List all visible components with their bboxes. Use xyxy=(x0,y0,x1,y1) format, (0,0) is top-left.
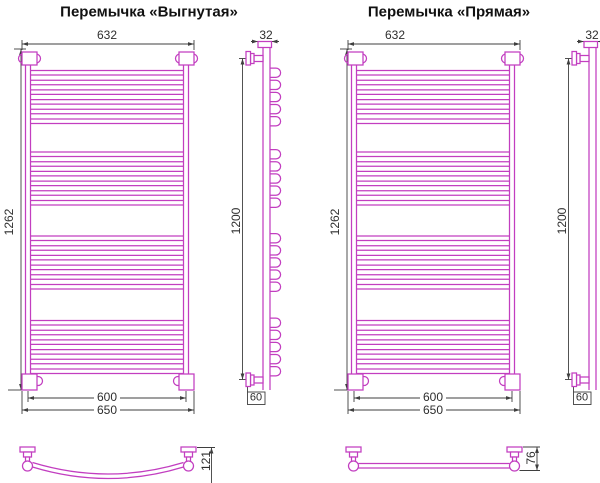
dim-cap-width-label: 32 xyxy=(585,29,598,41)
dim-bar-depth-label: 121 xyxy=(200,451,212,471)
dim-overall-width-label: 650 xyxy=(94,404,120,416)
figure-title: Перемычка «Выгнутая» xyxy=(60,4,238,21)
pryamaya-product-lines xyxy=(345,42,598,472)
vygnutaya-product-lines xyxy=(19,42,281,479)
vygnutaya-drawing xyxy=(8,40,281,483)
dim-axis-height-label: 1200 xyxy=(556,208,568,235)
dim-overall-height-label: 1262 xyxy=(329,209,341,236)
dim-overall-width-label: 650 xyxy=(420,404,446,416)
dim-top-width-label: 632 xyxy=(385,29,405,41)
technical-drawing-canvas: Перемычка «Выгнутая» 632 32 1262 1200 60… xyxy=(0,0,600,483)
dim-rail-spacing-label: 600 xyxy=(94,391,120,403)
dim-wall-offset-label: 60 xyxy=(250,393,262,404)
dim-overall-height-label: 1262 xyxy=(3,209,15,236)
dim-cap-width-label: 32 xyxy=(259,29,272,41)
dim-wall-offset-label: 60 xyxy=(576,393,588,404)
drawing-svg xyxy=(0,0,600,483)
dim-top-width-label: 632 xyxy=(97,29,117,41)
figure-title: Перемычка «Прямая» xyxy=(368,4,530,21)
dim-rail-spacing-label: 600 xyxy=(420,391,446,403)
dim-axis-height-label: 1200 xyxy=(230,208,242,235)
vygnutaya-dimensions xyxy=(8,40,279,483)
pryamaya-drawing xyxy=(334,40,600,471)
dim-bar-depth-label: 76 xyxy=(525,451,537,464)
